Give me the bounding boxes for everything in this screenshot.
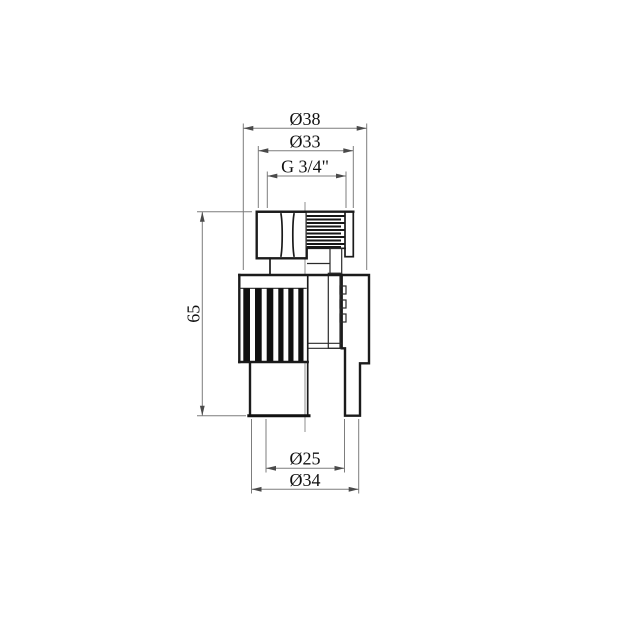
arrow-right-icon [336,174,346,179]
arrow-right-icon [335,466,345,471]
drawing-canvas: Ø38 Ø33 G 3/4" 65 Ø25 Ø34 [0,0,630,630]
knurl-rib [255,288,262,361]
knurl-rib [278,288,283,361]
arrow-left-icon [252,487,262,492]
arrow-right-icon [349,487,359,492]
dim-label-d33: Ø33 [290,131,321,151]
dim-label-d25: Ø25 [290,449,321,469]
arrow-up-icon [200,212,205,222]
fitting-body [239,248,369,415]
dimension-d38: Ø38 [243,109,366,131]
dimension-d34: Ø34 [252,470,359,492]
dim-label-d38: Ø38 [290,109,321,129]
dim-label-g34: G 3/4" [281,157,329,177]
arrow-left-icon [267,174,277,179]
dimension-g34: G 3/4" [267,157,346,179]
insert-connector-hatch [330,248,342,273]
technical-drawing: Ø38 Ø33 G 3/4" 65 Ø25 Ø34 [0,0,630,630]
knurl-rib [243,288,250,361]
arrow-left-icon [266,466,276,471]
dimension-h65: 65 [184,212,205,416]
arrow-right-icon [357,126,367,131]
knurl-rib [288,288,293,361]
arrow-right-icon [343,148,353,153]
dimension-d25: Ø25 [266,449,345,471]
dimension-d33: Ø33 [258,131,353,153]
arrow-left-icon [243,126,253,131]
nut-wall-section-hatch [345,212,353,257]
knurl-rib [298,288,303,361]
body-section-crosshatch [342,275,369,416]
insert-wall-hatch [328,273,340,348]
dim-label-h65: 65 [184,305,204,323]
arrow-down-icon [200,406,205,416]
dim-label-d34: Ø34 [290,470,321,490]
knurl-rib [267,288,274,361]
arrow-left-icon [258,148,268,153]
